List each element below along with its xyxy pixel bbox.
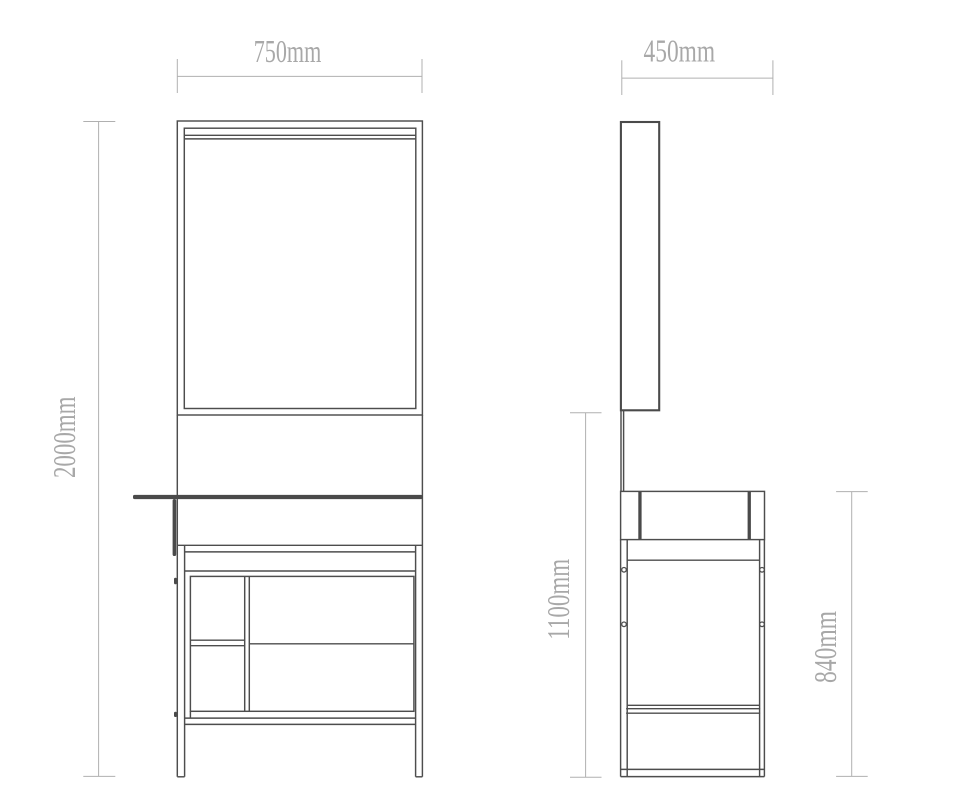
svg-text:840mm: 840mm — [807, 611, 843, 683]
svg-text:450mm: 450mm — [644, 33, 716, 69]
svg-text:1100mm: 1100mm — [540, 559, 576, 640]
svg-text:750mm: 750mm — [254, 33, 322, 69]
svg-text:2000mm: 2000mm — [46, 396, 82, 478]
